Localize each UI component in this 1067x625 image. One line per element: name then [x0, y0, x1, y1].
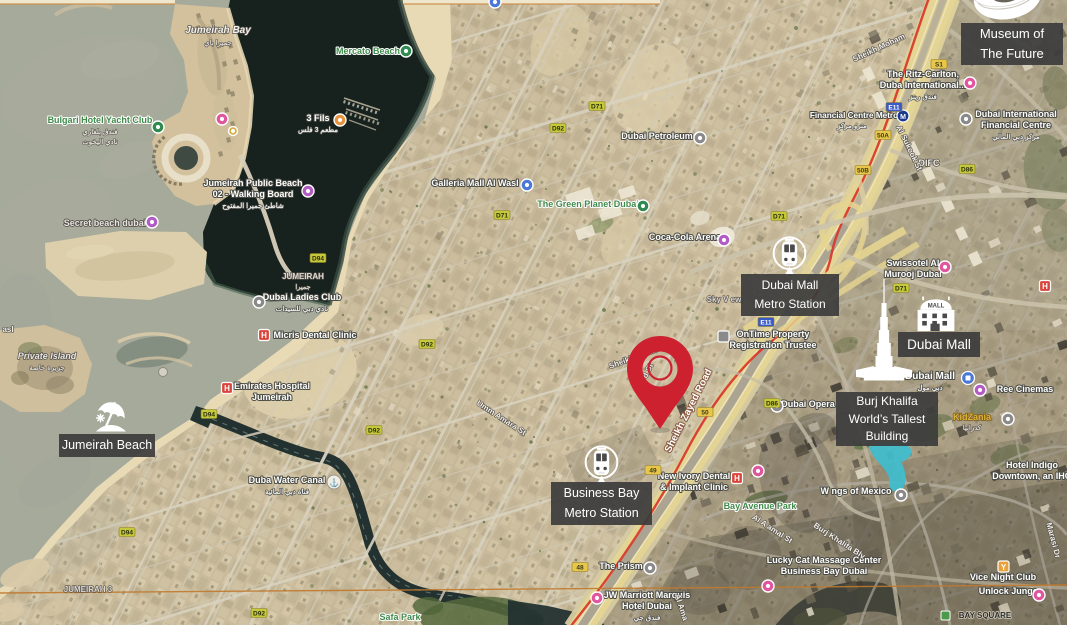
- svg-text:OnTime Property: OnTime Property: [737, 329, 810, 339]
- svg-text:Jumeirah Public Beach: Jumeirah Public Beach: [203, 178, 302, 188]
- svg-text:Dubai International: Dubai International: [975, 109, 1057, 119]
- svg-text:Hotel Indigo: Hotel Indigo: [1006, 460, 1058, 470]
- svg-text:& Implant Clinic: & Implant Clinic: [660, 482, 728, 492]
- svg-text:M: M: [900, 114, 906, 121]
- svg-text:مركز دبي المالي: مركز دبي المالي: [992, 133, 1040, 142]
- svg-text:MALL: MALL: [928, 304, 945, 310]
- svg-text:مترو مركز: مترو مركز: [836, 122, 867, 130]
- svg-text:D86: D86: [961, 166, 973, 173]
- svg-text:Al A amal St: Al A amal St: [751, 513, 795, 546]
- svg-text:D92: D92: [368, 427, 380, 434]
- svg-text:H: H: [1042, 282, 1048, 291]
- svg-text:قناة دبي المائية: قناة دبي المائية: [265, 488, 309, 497]
- svg-text:Sheikh Moham: Sheikh Moham: [851, 32, 906, 64]
- svg-text:Y: Y: [1001, 563, 1007, 572]
- svg-text:Private Island: Private Island: [18, 351, 77, 361]
- svg-text:BAY SQUARE: BAY SQUARE: [959, 611, 1012, 620]
- svg-text:Hotel Dubai: Hotel Dubai: [622, 601, 672, 611]
- svg-text:W ngs of Mexico: W ngs of Mexico: [820, 486, 892, 496]
- svg-text:D92: D92: [421, 341, 433, 348]
- svg-text:New Ivory Dental: New Ivory Dental: [658, 471, 731, 481]
- svg-text:Marasi Dr: Marasi Dr: [1044, 522, 1062, 560]
- svg-text:Micris Dental Clinic: Micris Dental Clinic: [273, 330, 356, 340]
- svg-text:D71: D71: [496, 212, 508, 219]
- svg-text:D71: D71: [591, 103, 603, 110]
- svg-text:Mercato Beach: Mercato Beach: [336, 46, 400, 56]
- svg-text:فندق جي: فندق جي: [634, 615, 661, 623]
- svg-text:JUMEIRAH: JUMEIRAH: [282, 272, 324, 281]
- svg-text:Vice Night Club: Vice Night Club: [970, 572, 1037, 582]
- svg-text:Secret beach dubai: Secret beach dubai: [64, 218, 147, 228]
- svg-text:Business Bay Dubai: Business Bay Dubai: [781, 566, 868, 576]
- svg-text:48: 48: [576, 564, 584, 571]
- svg-text:Downtown, an IHG: Downtown, an IHG: [992, 471, 1067, 481]
- svg-text:Emirates Hospital: Emirates Hospital: [234, 381, 310, 391]
- svg-text:Jumeirah Bay: Jumeirah Bay: [185, 25, 251, 36]
- svg-text:D92: D92: [552, 125, 564, 132]
- svg-text:JUMEIRAH 3: JUMEIRAH 3: [64, 585, 113, 594]
- svg-text:Dubai Opera: Dubai Opera: [781, 399, 836, 409]
- svg-text:E11: E11: [760, 319, 772, 326]
- svg-text:Bulgari Hotel Yacht Club: Bulgari Hotel Yacht Club: [48, 115, 153, 125]
- svg-text:مطعم 3 فلس: مطعم 3 فلس: [298, 126, 338, 134]
- svg-text:D71: D71: [773, 213, 785, 220]
- svg-text:نادي اليخوت: نادي اليخوت: [82, 138, 118, 147]
- svg-text:asl: asl: [2, 325, 13, 334]
- svg-text:Sky V ew: Sky V ew: [707, 295, 742, 304]
- svg-text:كدزانيا: كدزانيا: [963, 424, 982, 432]
- svg-text:⚓: ⚓: [329, 478, 339, 488]
- svg-text:جميرا باي: جميرا باي: [204, 39, 232, 48]
- svg-text:50B: 50B: [857, 167, 869, 174]
- svg-text:D94: D94: [121, 529, 133, 536]
- svg-text:Duba International...: Duba International...: [880, 80, 967, 90]
- svg-text:KidZania: KidZania: [953, 412, 992, 422]
- svg-text:Ree Cinemas: Ree Cinemas: [997, 384, 1054, 394]
- svg-text:Umm Amara St: Umm Amara St: [475, 399, 528, 438]
- svg-text:The Green Planet Dubai: The Green Planet Dubai: [537, 199, 639, 209]
- svg-text:The Ritz-Carlton,: The Ritz-Carlton,: [887, 69, 959, 79]
- svg-text:02 - Walking Board: 02 - Walking Board: [213, 189, 294, 199]
- svg-text:Financial Centre: Financial Centre: [981, 120, 1051, 130]
- svg-text:Safa Park: Safa Park: [379, 612, 421, 622]
- svg-text:Dubai Petroleum: Dubai Petroleum: [621, 131, 693, 141]
- svg-text:D92: D92: [253, 610, 265, 617]
- svg-text:Financial Centre Metro: Financial Centre Metro: [810, 111, 898, 120]
- svg-text:E11: E11: [888, 104, 900, 111]
- svg-text:Duba Water Canal: Duba Water Canal: [249, 475, 326, 485]
- svg-text:H: H: [734, 474, 740, 483]
- svg-text:جزيرة خاصة: جزيرة خاصة: [29, 364, 65, 372]
- svg-text:H: H: [261, 331, 267, 340]
- svg-text:H: H: [224, 384, 230, 393]
- svg-text:فندق بلغاري: فندق بلغاري: [82, 128, 117, 137]
- svg-text:Al Sukook St: Al Sukook St: [894, 124, 924, 173]
- svg-text:شاطئ جميرا المفتوح: شاطئ جميرا المفتوح: [222, 202, 284, 210]
- svg-text:فندق ريتز: فندق ريتز: [908, 94, 937, 101]
- svg-text:50A: 50A: [877, 132, 889, 139]
- svg-text:جميرا: جميرا: [295, 283, 310, 291]
- svg-text:S1: S1: [935, 61, 943, 68]
- svg-text:Galleria Mall Al Wasl: Galleria Mall Al Wasl: [431, 178, 518, 188]
- svg-text:D94: D94: [312, 255, 324, 262]
- svg-text:Bay Avenue Park: Bay Avenue Park: [724, 501, 798, 511]
- svg-text:D94: D94: [203, 411, 215, 418]
- svg-text:Registration Trustee: Registration Trustee: [729, 340, 816, 350]
- svg-text:3 Fils: 3 Fils: [306, 113, 329, 123]
- svg-text:Swissotel Al: Swissotel Al: [887, 258, 940, 268]
- svg-text:49: 49: [649, 467, 657, 474]
- svg-text:نادي دبي للسيدات: نادي دبي للسيدات: [276, 305, 329, 314]
- svg-text:Coca-Cola Arena: Coca-Cola Arena: [649, 232, 722, 242]
- svg-text:The Prism: The Prism: [599, 561, 643, 571]
- svg-text:Jumeirah: Jumeirah: [252, 392, 292, 402]
- svg-text:D86: D86: [766, 400, 778, 407]
- svg-text:Dubai Ladies Club: Dubai Ladies Club: [263, 292, 342, 302]
